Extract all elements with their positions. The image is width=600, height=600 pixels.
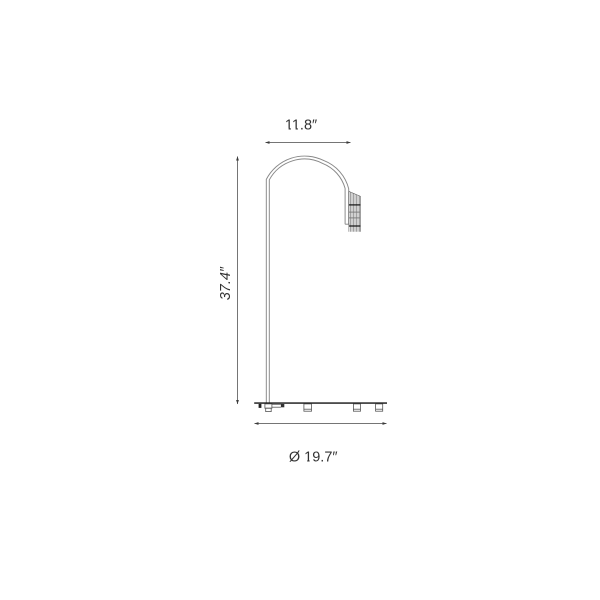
svg-text:11.8″: 11.8″ bbox=[285, 118, 317, 134]
svg-text:37.4″: 37.4″ bbox=[218, 266, 234, 300]
svg-text:Ø 19.7″: Ø 19.7″ bbox=[289, 450, 338, 466]
